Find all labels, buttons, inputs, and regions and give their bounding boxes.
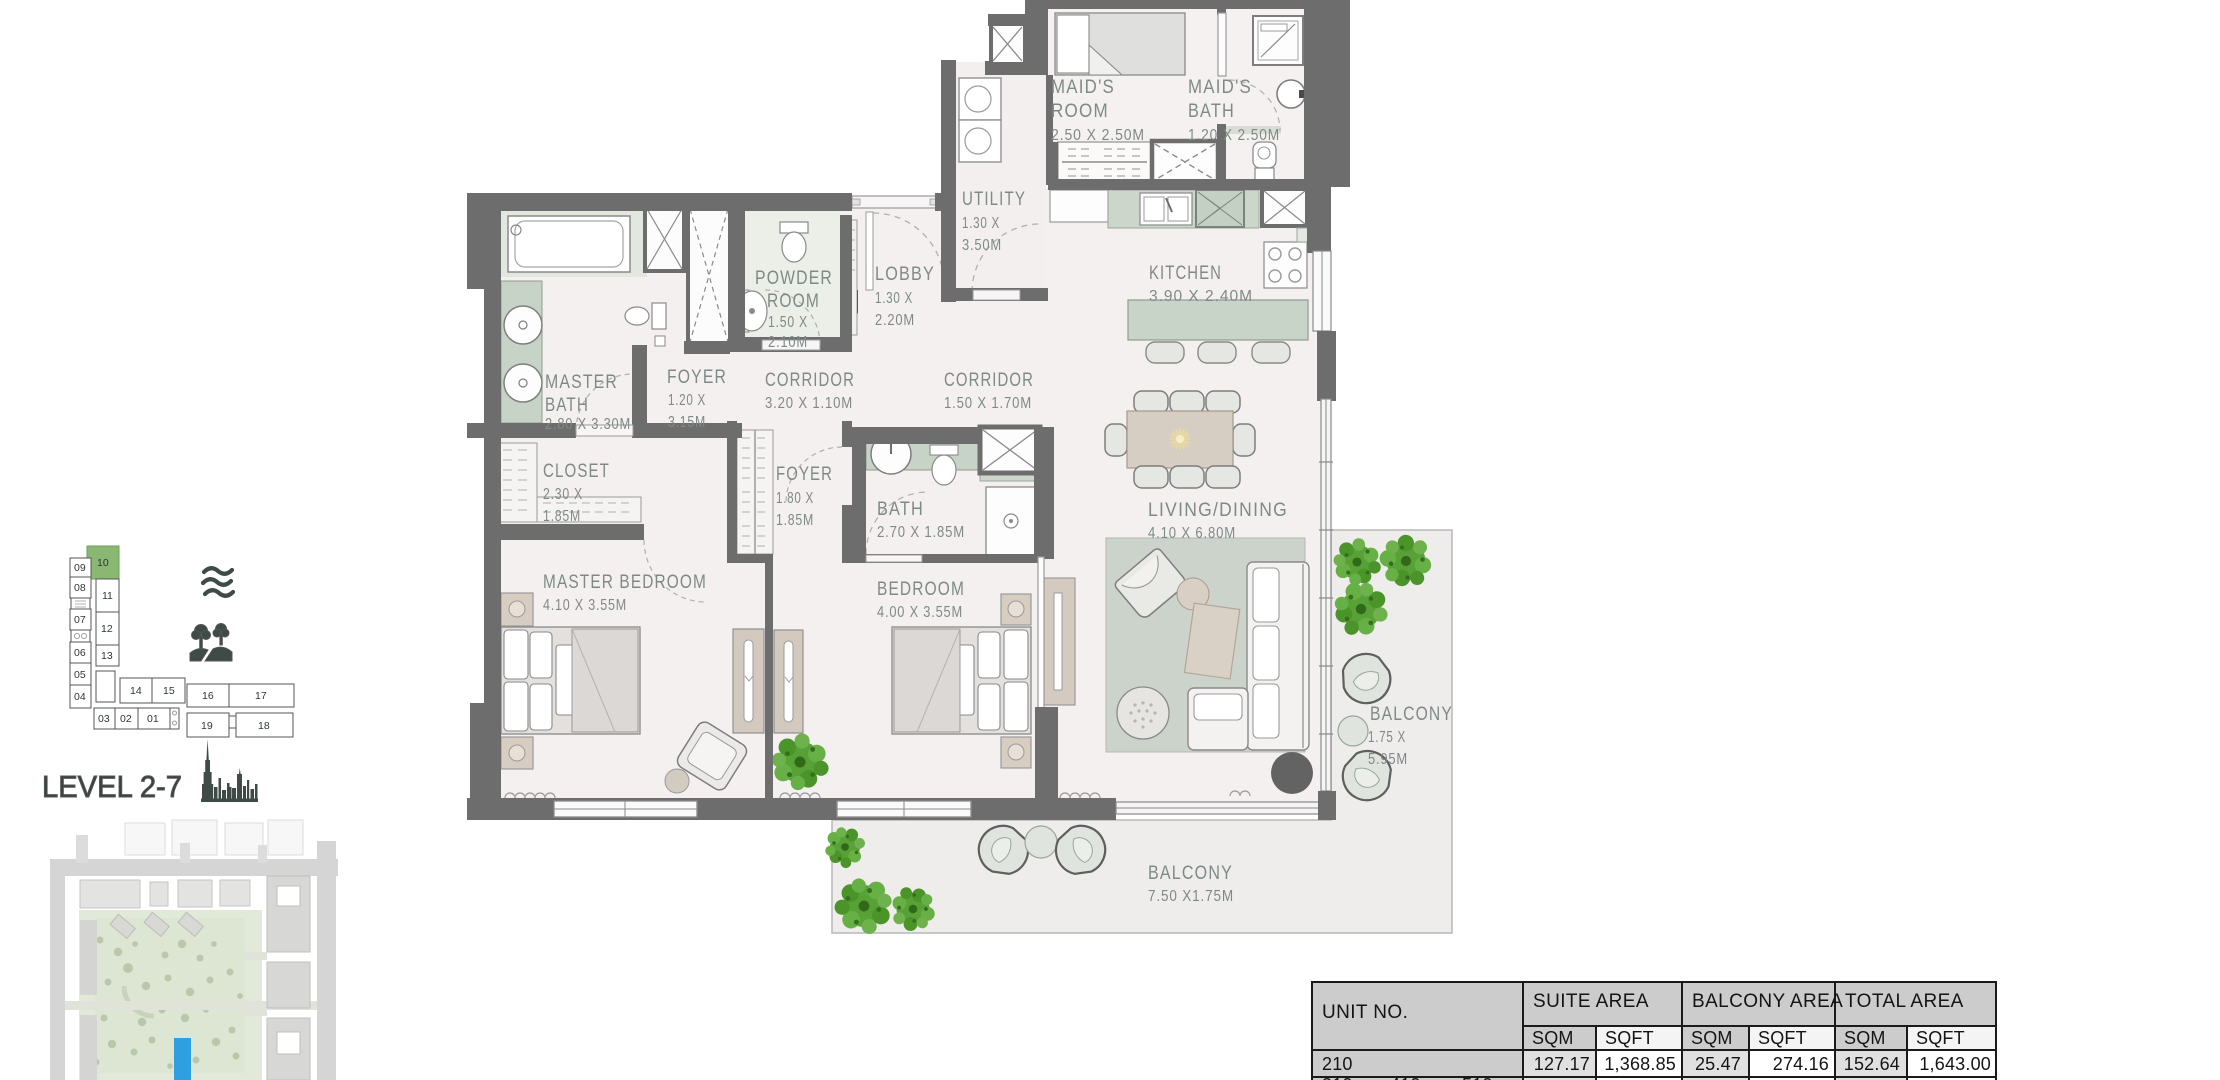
svg-text:LOBBY: LOBBY (875, 264, 935, 285)
svg-text:1,368.85: 1,368.85 (1604, 1054, 1676, 1074)
svg-text:2.80 X 3.30M: 2.80 X 3.30M (545, 416, 631, 433)
svg-text:ROOM: ROOM (767, 291, 820, 312)
svg-text:13: 13 (101, 650, 113, 662)
svg-text:15: 15 (163, 685, 175, 697)
svg-text:SQM: SQM (1532, 1028, 1574, 1048)
svg-text:ROOM: ROOM (1051, 101, 1109, 122)
svg-text:1.30 X: 1.30 X (962, 215, 1000, 232)
svg-text:3.90 X 2.40M: 3.90 X 2.40M (1149, 288, 1253, 305)
svg-text:3.20 X 1.10M: 3.20 X 1.10M (765, 395, 853, 412)
svg-text:210: 210 (1322, 1054, 1353, 1074)
svg-text:LIVING/DINING: LIVING/DINING (1148, 500, 1288, 521)
svg-text:1.20 X 2.50M: 1.20 X 2.50M (1188, 127, 1280, 144)
svg-text:05: 05 (74, 669, 86, 681)
svg-text:SQFT: SQFT (1758, 1028, 1807, 1048)
svg-text:02: 02 (120, 713, 132, 725)
svg-text:SQM: SQM (1844, 1028, 1886, 1048)
svg-text:1,643.00: 1,643.00 (1919, 1054, 1991, 1074)
svg-text:01: 01 (147, 713, 159, 725)
svg-text:BATH: BATH (877, 499, 924, 520)
svg-text:1.50 X 1.70M: 1.50 X 1.70M (944, 395, 1032, 412)
svg-text:12: 12 (101, 623, 113, 635)
svg-text:10: 10 (97, 557, 109, 569)
svg-text:03: 03 (98, 713, 110, 725)
svg-text:5.95M: 5.95M (1368, 751, 1408, 768)
svg-text:BALCONY: BALCONY (1148, 863, 1233, 884)
svg-text:2.50 X 2.50M: 2.50 X 2.50M (1051, 127, 1145, 144)
svg-text:UNIT NO.: UNIT NO. (1322, 1002, 1408, 1023)
svg-text:06: 06 (74, 647, 86, 659)
svg-text:MAID'S: MAID'S (1051, 77, 1115, 98)
svg-text:08: 08 (74, 582, 86, 594)
svg-text:2.10M: 2.10M (768, 334, 808, 351)
svg-text:04: 04 (74, 691, 86, 703)
svg-text:SQM: SQM (1691, 1028, 1733, 1048)
svg-text:1.30 X: 1.30 X (875, 290, 913, 307)
svg-text:UTILITY: UTILITY (962, 189, 1026, 210)
svg-text:07: 07 (74, 614, 86, 626)
svg-text:1.85M: 1.85M (543, 508, 581, 525)
svg-text:CORRIDOR: CORRIDOR (765, 370, 855, 391)
svg-text:SQFT: SQFT (1605, 1028, 1654, 1048)
svg-text:BATH: BATH (545, 395, 589, 416)
svg-text:4.10 X 6.80M: 4.10 X 6.80M (1148, 525, 1236, 542)
svg-text:18: 18 (258, 720, 270, 732)
svg-text:BALCONY: BALCONY (1370, 704, 1453, 725)
svg-text:14: 14 (130, 685, 142, 697)
svg-text:MASTER BEDROOM: MASTER BEDROOM (543, 572, 707, 593)
svg-text:127.17: 127.17 (1534, 1054, 1590, 1074)
svg-text:310: 310 (1322, 1075, 1353, 1080)
svg-text:16: 16 (202, 690, 214, 702)
svg-text:FOYER: FOYER (776, 464, 833, 485)
svg-text:2.70 X 1.85M: 2.70 X 1.85M (877, 524, 965, 541)
svg-text:BATH: BATH (1188, 101, 1235, 122)
svg-text:1.50 X: 1.50 X (768, 314, 808, 331)
svg-text:CORRIDOR: CORRIDOR (944, 370, 1034, 391)
svg-text:BEDROOM: BEDROOM (877, 579, 965, 600)
svg-text:FOYER: FOYER (667, 367, 727, 388)
svg-text:SQFT: SQFT (1916, 1028, 1965, 1048)
svg-text:11: 11 (102, 590, 113, 602)
svg-text:LEVEL 2-7: LEVEL 2-7 (42, 769, 182, 804)
svg-text:1.20 X: 1.20 X (668, 392, 706, 409)
svg-text:2.20M: 2.20M (875, 312, 915, 329)
svg-text:MASTER: MASTER (545, 372, 618, 393)
svg-text:3.15M: 3.15M (668, 414, 706, 431)
svg-text:1.75 X: 1.75 X (1368, 729, 1406, 746)
svg-text:1.85M: 1.85M (776, 512, 814, 529)
svg-text:TOTAL AREA: TOTAL AREA (1845, 991, 1964, 1012)
svg-text:274.16: 274.16 (1773, 1054, 1829, 1074)
svg-text:KITCHEN: KITCHEN (1149, 263, 1222, 284)
svg-text:CLOSET: CLOSET (543, 461, 610, 482)
svg-text:510: 510 (1462, 1075, 1493, 1080)
svg-text:410: 410 (1390, 1075, 1421, 1080)
svg-text:3.50M: 3.50M (962, 237, 1002, 254)
svg-text:17: 17 (255, 690, 267, 702)
svg-text:7.50 X1.75M: 7.50 X1.75M (1148, 888, 1234, 905)
svg-text:SUITE AREA: SUITE AREA (1533, 991, 1649, 1012)
svg-text:2.30 X: 2.30 X (543, 486, 583, 503)
svg-text:25.47: 25.47 (1695, 1054, 1741, 1074)
svg-text:BALCONY AREA: BALCONY AREA (1692, 991, 1843, 1012)
svg-text:POWDER: POWDER (755, 268, 833, 289)
svg-text:09: 09 (74, 562, 86, 574)
svg-text:MAID'S: MAID'S (1188, 77, 1252, 98)
svg-text:1.80 X: 1.80 X (776, 490, 814, 507)
svg-text:19: 19 (201, 720, 213, 732)
svg-text:152.64: 152.64 (1844, 1054, 1900, 1074)
svg-text:4.10 X 3.55M: 4.10 X 3.55M (543, 597, 627, 614)
svg-text:4.00 X 3.55M: 4.00 X 3.55M (877, 604, 963, 621)
